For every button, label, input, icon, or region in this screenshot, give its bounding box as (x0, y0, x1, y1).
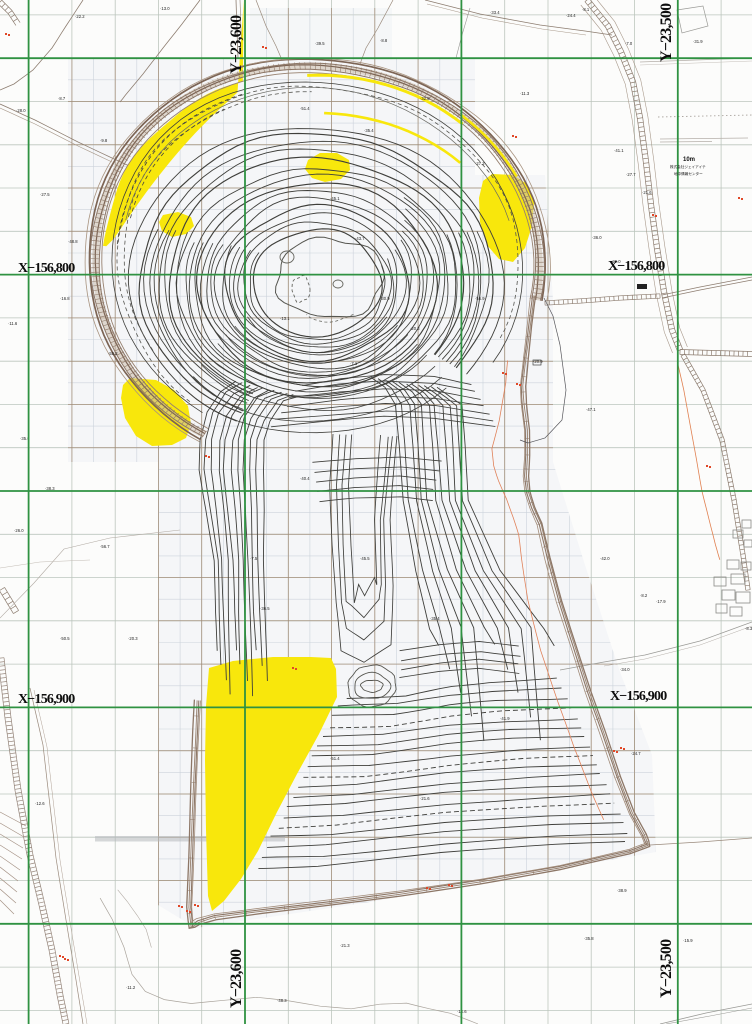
svg-text:·51.4: ·51.4 (300, 106, 310, 111)
svg-text:地中情報センター: 地中情報センター (674, 171, 703, 176)
svg-text:Y−23,600: Y−23,600 (228, 15, 245, 74)
svg-text:·8.1: ·8.1 (582, 7, 590, 12)
svg-text:·55.2: ·55.2 (108, 351, 118, 356)
svg-text:·13.0: ·13.0 (160, 6, 170, 11)
svg-text:·27.2: ·27.2 (475, 161, 485, 166)
svg-text:·41.1: ·41.1 (614, 148, 624, 153)
svg-text:·13.1: ·13.1 (280, 316, 290, 321)
svg-text:·27.7: ·27.7 (626, 172, 636, 177)
svg-text:·56.7: ·56.7 (100, 544, 110, 549)
svg-text:株式会社ジェイアイテ: 株式会社ジェイアイテ (670, 164, 706, 169)
svg-text:·20.3: ·20.3 (128, 636, 138, 641)
svg-text:·7.0: ·7.0 (625, 41, 633, 46)
svg-text:·24.4: ·24.4 (566, 13, 576, 18)
svg-text:·42.0: ·42.0 (600, 556, 610, 561)
svg-text:·41.9: ·41.9 (500, 716, 510, 721)
svg-text:·38.9: ·38.9 (617, 888, 627, 893)
svg-text:Y−23,500: Y−23,500 (658, 939, 675, 998)
svg-text:·11.3: ·11.3 (520, 91, 530, 96)
svg-text:·33.4: ·33.4 (490, 10, 500, 15)
svg-text:·11.2: ·11.2 (126, 985, 136, 990)
svg-text:·35.4: ·35.4 (364, 128, 374, 133)
svg-text:·8.7: ·8.7 (58, 96, 66, 101)
svg-text:·51.4: ·51.4 (330, 756, 340, 761)
svg-text:·27.5: ·27.5 (40, 192, 50, 197)
svg-text:·36.0: ·36.0 (592, 235, 602, 240)
svg-text:·26.0: ·26.0 (14, 528, 24, 533)
svg-text:X−156,900: X−156,900 (610, 689, 667, 704)
svg-text:·7.1: ·7.1 (350, 361, 358, 366)
svg-text:Y−23,600: Y−23,600 (228, 949, 245, 1008)
svg-text:·8.2: ·8.2 (640, 593, 648, 598)
svg-text:10m: 10m (683, 157, 695, 163)
svg-text:·45.1: ·45.1 (330, 196, 340, 201)
svg-text:·32.8: ·32.8 (420, 96, 430, 101)
svg-text:·43.7: ·43.7 (355, 236, 365, 241)
svg-text:·48.3: ·48.3 (277, 998, 287, 1003)
svg-text:·35.8: ·35.8 (584, 936, 594, 941)
svg-text:·15.9: ·15.9 (683, 938, 693, 943)
svg-text:·8.3: ·8.3 (745, 626, 752, 631)
svg-text:·45.5: ·45.5 (360, 556, 370, 561)
svg-text:·36.5: ·36.5 (260, 606, 270, 611)
svg-text:·50.5: ·50.5 (60, 636, 70, 641)
svg-text:·31.9: ·31.9 (693, 39, 703, 44)
svg-text:·28.0: ·28.0 (16, 108, 26, 113)
svg-text:·20.3: ·20.3 (410, 326, 420, 331)
svg-text:·20.9: ·20.9 (533, 359, 543, 364)
svg-text:·17.9: ·17.9 (656, 599, 666, 604)
svg-text:·56.9: ·56.9 (475, 296, 485, 301)
svg-text:·22.2: ·22.2 (75, 14, 85, 19)
svg-text:·48.8: ·48.8 (68, 239, 78, 244)
svg-text:·16.8: ·16.8 (60, 296, 70, 301)
svg-text:Y−23,500: Y−23,500 (658, 3, 675, 62)
svg-text:·47.1: ·47.1 (586, 407, 596, 412)
svg-text:·35.4: ·35.4 (430, 616, 440, 621)
svg-text:·11.6: ·11.6 (8, 321, 18, 326)
svg-text:·39.5: ·39.5 (315, 41, 325, 46)
svg-text:·21.6: ·21.6 (420, 796, 430, 801)
svg-text:·24.7: ·24.7 (631, 751, 641, 756)
svg-text:·7.5: ·7.5 (250, 556, 258, 561)
svg-text:·40.4: ·40.4 (300, 476, 310, 481)
svg-text:·8.8: ·8.8 (380, 38, 388, 43)
svg-text:X−156,800: X−156,800 (18, 261, 75, 276)
svg-text:·30.9: ·30.9 (380, 296, 390, 301)
svg-text:·21.3: ·21.3 (340, 943, 350, 948)
svg-text:X−156,800: X−156,800 (608, 259, 665, 274)
svg-text:·21.6: ·21.6 (642, 190, 652, 195)
svg-text:X−156,900: X−156,900 (18, 692, 75, 707)
svg-text:·12.6: ·12.6 (35, 801, 45, 806)
svg-text:·34.0: ·34.0 (620, 667, 630, 672)
svg-text:·9.8: ·9.8 (100, 138, 108, 143)
